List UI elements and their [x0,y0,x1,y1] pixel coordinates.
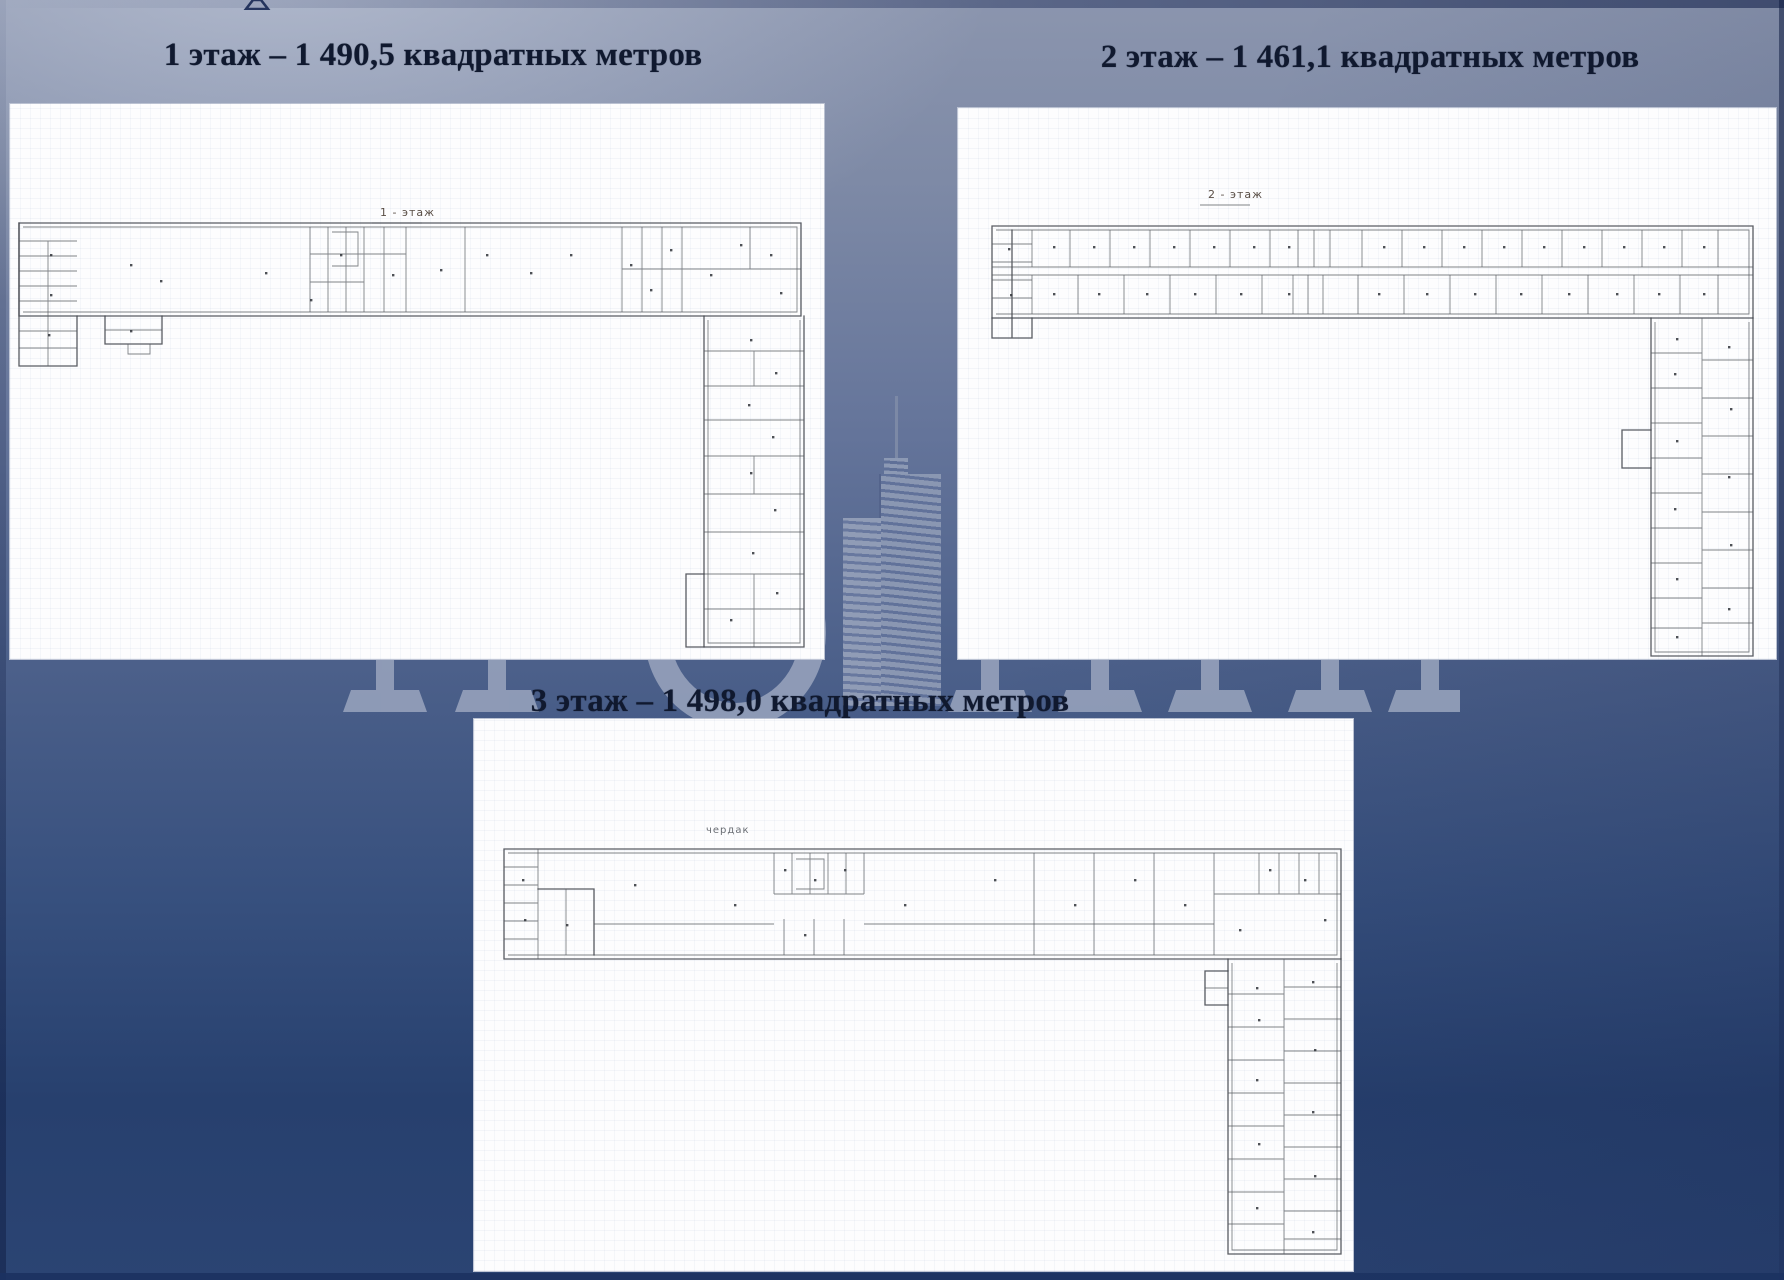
tower-right-column [879,474,941,706]
floor3-plan-panel: чердак [473,718,1354,1272]
floor2-plan-panel: 2 - этаж [957,107,1777,660]
right-edge-shadow [1779,0,1784,1280]
floor3-plan-label: чердак [706,825,750,836]
presentation-slide: 1 этаж – 1 490,5 квадратных метров 2 эта… [0,0,1784,1280]
left-edge-shadow [0,0,6,1280]
floor1-plan-drawing: 1 - этаж [10,104,826,661]
skyscraper-watermark-icon [843,396,939,706]
bottom-edge-shadow [0,1273,1784,1280]
floor2-plan-label: 2 - этаж [1208,188,1263,201]
tower-left-column [843,518,881,706]
title-floor2: 2 этаж – 1 461,1 квадратных метров [1101,40,1639,75]
title-floor1: 1 этаж – 1 490,5 квадратных метров [164,38,702,73]
tower-antenna [895,396,898,464]
floor2-plan-drawing: 2 - этаж [958,108,1778,661]
cropped-heading-letter-fragment [240,0,274,10]
title-floor3: 3 этаж – 1 498,0 квадратных метров [531,684,1069,719]
floor1-plan-label: 1 - этаж [380,206,435,219]
floor3-plan-drawing: чердак [474,719,1355,1273]
floor1-plan-panel: 1 - этаж [9,103,825,660]
